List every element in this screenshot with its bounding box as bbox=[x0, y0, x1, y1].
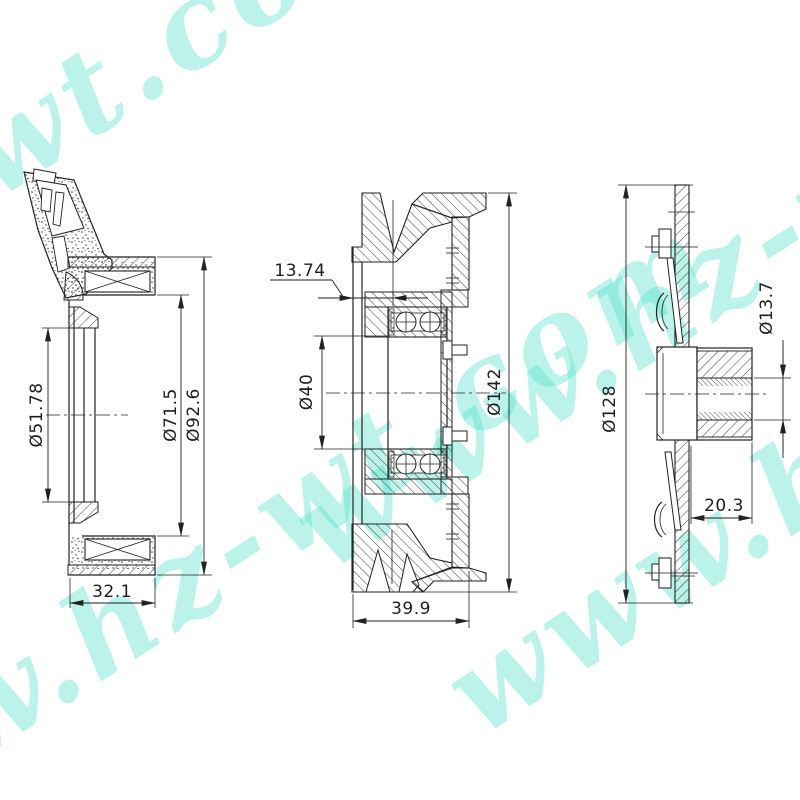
pulley-section-view: 13.74 Ø40 Ø142 39.9 bbox=[270, 193, 517, 628]
dim-label-pulley-width: 39.9 bbox=[391, 599, 431, 619]
dim-label-hub-depth: 20.3 bbox=[704, 496, 744, 516]
dim-label-coil-mid-dia: Ø71.5 bbox=[161, 388, 181, 442]
rivet-bottom bbox=[645, 558, 698, 588]
dim-label-pulley-od: Ø142 bbox=[485, 368, 505, 416]
dim-label-coil-inner-dia: Ø51.78 bbox=[27, 382, 47, 447]
clutch-hub bbox=[657, 347, 752, 440]
bearing-top bbox=[388, 307, 447, 337]
field-coil-section-view: Ø51.78 Ø71.5 Ø92.6 32.1 bbox=[24, 169, 212, 608]
dim-label-plate-od: Ø128 bbox=[600, 385, 620, 433]
bearing-bottom bbox=[388, 449, 447, 479]
coil-top-section bbox=[68, 257, 155, 295]
technical-drawing-page: www.hz-wt.com www.hz-wt.com www.hz-wt.co… bbox=[0, 0, 800, 800]
dim-label-shaft-bore: Ø13.7 bbox=[757, 281, 777, 335]
rivet-top bbox=[645, 229, 698, 258]
clutch-plate-section-view: Ø128 Ø13.7 20.3 bbox=[600, 185, 791, 603]
coil-bottom-section bbox=[68, 536, 155, 575]
clutch-assembly-drawing: Ø51.78 Ø71.5 Ø92.6 32.1 bbox=[0, 0, 800, 800]
dim-label-groove-offset: 13.74 bbox=[274, 261, 325, 281]
dim-label-bearing-bore: Ø40 bbox=[297, 374, 317, 411]
coil-flange-wall bbox=[69, 300, 98, 565]
dim-label-coil-width: 32.1 bbox=[92, 582, 132, 602]
dim-label-coil-outer-dia: Ø92.6 bbox=[184, 388, 204, 442]
